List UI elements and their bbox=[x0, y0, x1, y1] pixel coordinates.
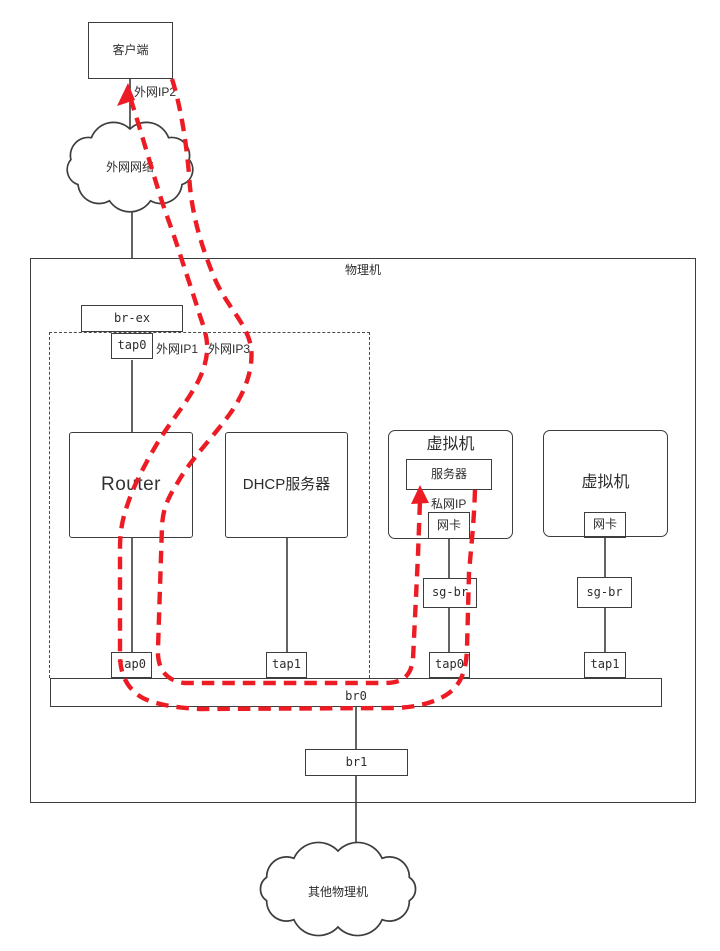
wan-ip1-label: 外网IP1 bbox=[156, 340, 198, 357]
vm2-label: 虚拟机 bbox=[581, 474, 629, 492]
ns-tap0-label: tap0 bbox=[118, 339, 147, 353]
br0-bar: br0 bbox=[50, 678, 662, 707]
br-ex-box: br-ex bbox=[81, 305, 183, 332]
vm1-tap0-box: tap0 bbox=[429, 652, 470, 678]
host-tap0-label: tap0 bbox=[117, 658, 146, 672]
router-box: Router bbox=[69, 432, 193, 538]
vm1-label: 虚拟机 bbox=[426, 436, 474, 454]
vm1-sg-br-label: sg-br bbox=[432, 586, 468, 600]
server-label: 服务器 bbox=[431, 468, 467, 482]
vm2-tap1-label: tap1 bbox=[591, 658, 620, 672]
host-tap1-label: tap1 bbox=[272, 658, 301, 672]
wan-ip3-label: 外网IP3 bbox=[208, 340, 250, 357]
br-ex-label: br-ex bbox=[114, 312, 150, 326]
br1-box: br1 bbox=[305, 749, 408, 776]
router-label: Router bbox=[101, 474, 161, 496]
vm2-nic-box: 网卡 bbox=[584, 512, 626, 538]
vm1-nic-label: 网卡 bbox=[437, 519, 461, 533]
network-diagram: 物理机 客户端 外网IP2 外网网络 br-ex tap0 外网IP1 外网IP… bbox=[0, 0, 720, 951]
host-tap0-box: tap0 bbox=[111, 652, 152, 678]
client-box: 客户端 bbox=[88, 22, 173, 79]
physical-machine-label: 物理机 bbox=[30, 261, 696, 278]
private-ip-label: 私网IP bbox=[431, 495, 466, 512]
server-box: 服务器 bbox=[406, 459, 492, 490]
vm1-nic-box: 网卡 bbox=[428, 512, 470, 539]
dhcp-server-label: DHCP服务器 bbox=[243, 476, 331, 493]
other-hosts-label: 其他物理机 bbox=[293, 883, 383, 900]
vm2-tap1-box: tap1 bbox=[584, 652, 626, 678]
ns-tap0-box: tap0 bbox=[111, 333, 153, 359]
vm2-nic-label: 网卡 bbox=[593, 518, 617, 532]
external-network-label: 外网网络 bbox=[90, 158, 170, 175]
wan-ip2-label: 外网IP2 bbox=[134, 83, 176, 100]
br0-label: br0 bbox=[345, 690, 367, 704]
client-label: 客户端 bbox=[112, 44, 148, 58]
br1-label: br1 bbox=[346, 756, 368, 770]
dhcp-server-box: DHCP服务器 bbox=[225, 432, 348, 538]
vm2-sg-br-box: sg-br bbox=[577, 577, 632, 608]
vm2-sg-br-label: sg-br bbox=[586, 586, 622, 600]
host-tap1-box: tap1 bbox=[266, 652, 307, 678]
vm1-tap0-label: tap0 bbox=[435, 658, 464, 672]
vm1-sg-br-box: sg-br bbox=[423, 578, 477, 608]
